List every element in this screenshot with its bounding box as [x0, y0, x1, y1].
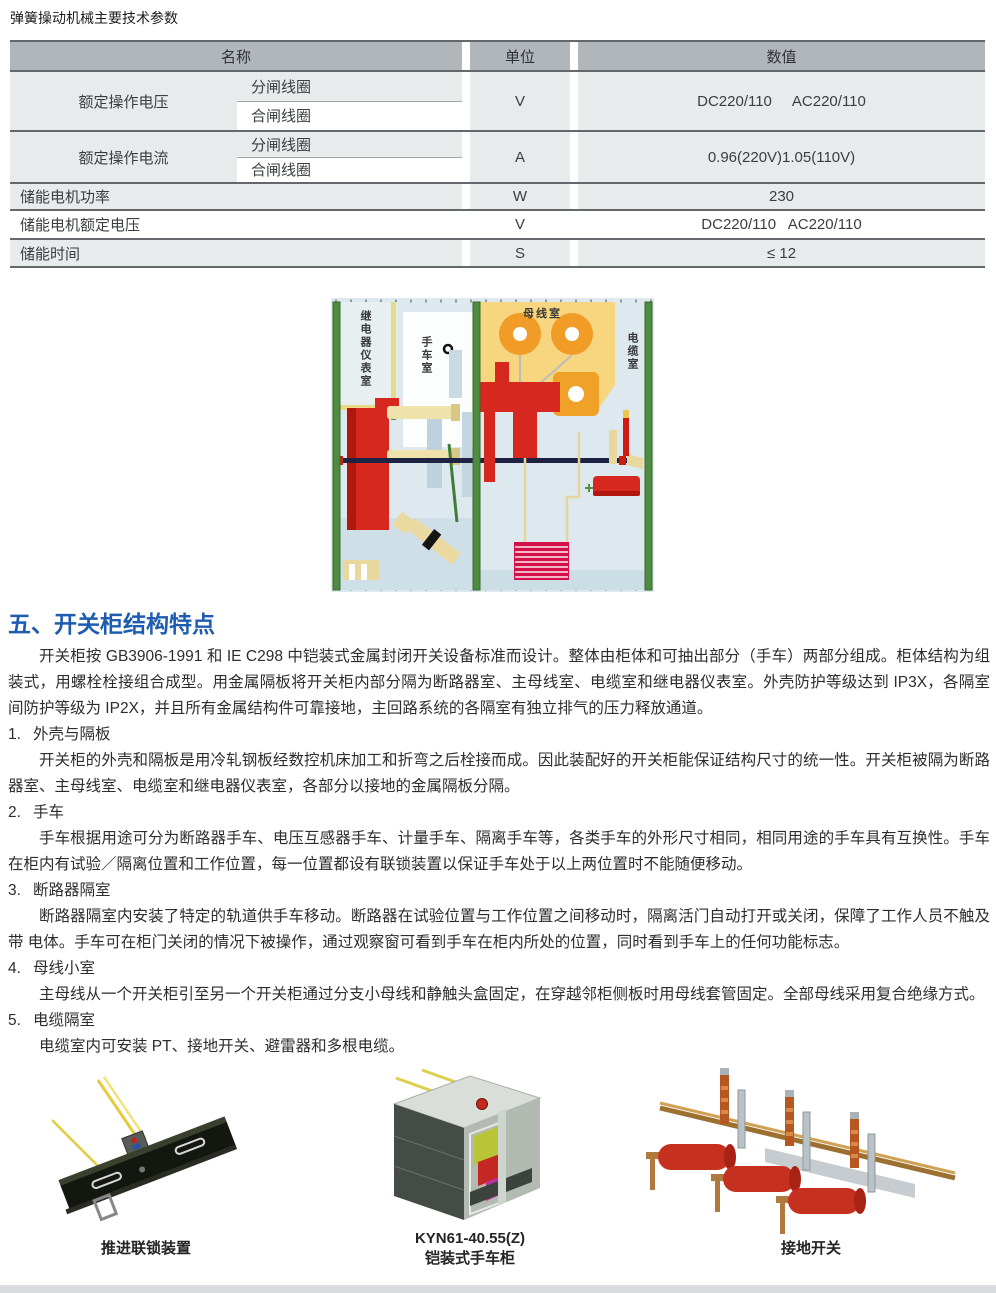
item-number: 2. — [8, 804, 21, 821]
item-title-text: 手车 — [33, 804, 64, 821]
item-title: 3.断路器隔室 — [8, 878, 990, 904]
row-unit: S — [470, 240, 570, 266]
figure-caption: KYN61-40.55(Z) — [382, 1229, 558, 1249]
row-name: 储能电机功率 — [10, 184, 462, 209]
item-title-text: 外壳与隔板 — [33, 726, 111, 743]
table-header-row: 名称 单位 数值 — [10, 42, 985, 72]
row-name: 储能时间 — [10, 240, 462, 266]
cabinet-illustration — [382, 1062, 558, 1224]
figure-cabinet: KYN61-40.55(Z) 铠装式手车柜 — [382, 1062, 558, 1269]
column-gap — [570, 184, 578, 209]
intro-paragraph: 开关柜按 GB3906-1991 和 IE C298 中铠装式金属封闭开关设备标… — [8, 644, 990, 722]
switchgear-section-diagram: 继电器仪表室 手车室 母线室 电缆室 — [327, 292, 658, 598]
handcart-room-label: 手车室 — [418, 336, 434, 402]
row-value: ≤ 12 — [578, 240, 985, 266]
item-title: 5.电缆隔室 — [8, 1008, 990, 1034]
item-body: 手车根据用途可分为断路器手车、电压互感器手车、计量手车、隔离手车等，各类手车的外… — [8, 826, 990, 878]
table-row: 额定操作电流 分闸线圈 合闸线圈 A 0.96(220V)1.05(110V) — [10, 132, 985, 184]
row-name: 额定操作电压 — [10, 72, 237, 130]
relay-room-label: 继电器仪表室 — [357, 310, 373, 412]
column-gap — [462, 184, 470, 209]
item-title: 4.母线小室 — [8, 956, 990, 982]
busbar-room-label: 母线室 — [523, 305, 562, 321]
column-gap — [462, 240, 470, 266]
item-title-text: 断路器隔室 — [33, 882, 111, 899]
subrow-close-coil: 合闸线圈 — [237, 102, 462, 131]
row-name: 额定操作电流 — [10, 132, 237, 182]
item-number: 1. — [8, 726, 21, 743]
row-unit: V — [470, 211, 570, 238]
column-gap — [462, 211, 470, 238]
item-number: 3. — [8, 882, 21, 899]
subrow-open-coil: 分闸线圈 — [237, 72, 462, 102]
column-gap — [570, 42, 578, 70]
item-body: 开关柜的外壳和隔板是用冷轧钢板经数控机床加工和折弯之后栓接而成。因此装配好的开关… — [8, 748, 990, 800]
table-row: 储能电机功率 W 230 — [10, 184, 985, 211]
row-unit: W — [470, 184, 570, 209]
subrow-close-coil: 合闸线圈 — [237, 158, 462, 183]
row-value: DC220/110 AC220/110 — [578, 72, 985, 130]
item-title: 2.手车 — [8, 800, 990, 826]
row-subcells: 分闸线圈 合闸线圈 — [237, 72, 462, 130]
page-title: 弹簧操动机械主要技术参数 — [10, 8, 178, 28]
column-gap — [462, 42, 470, 70]
column-gap — [462, 132, 470, 182]
row-subcells: 分闸线圈 合闸线圈 — [237, 132, 462, 182]
column-gap — [570, 240, 578, 266]
row-value: 0.96(220V)1.05(110V) — [578, 132, 985, 182]
item-title: 1.外壳与隔板 — [8, 722, 990, 748]
item-title-text: 电缆隔室 — [33, 1012, 95, 1029]
section-heading: 五、开关柜结构特点 — [8, 605, 215, 639]
row-name: 储能电机额定电压 — [10, 211, 462, 238]
figure-caption-line2: 铠装式手车柜 — [382, 1249, 558, 1269]
switchgear-diagram-image — [327, 292, 658, 598]
row-value: DC220/110 AC220/110 — [578, 211, 985, 238]
row-unit: V — [470, 72, 570, 130]
column-gap — [570, 211, 578, 238]
subrow-open-coil: 分闸线圈 — [237, 132, 462, 158]
row-value: 230 — [578, 184, 985, 209]
column-gap — [570, 132, 578, 182]
figure-caption: 推进联锁装置 — [40, 1239, 252, 1259]
figure-earthing-switch: 接地开关 — [645, 1056, 977, 1259]
item-title-text: 母线小室 — [33, 960, 95, 977]
cable-room-label: 电缆室 — [624, 332, 640, 398]
item-body: 主母线从一个开关柜引至另一个开关柜通过分支小母线和静触头盒固定，在穿越邻柜侧板时… — [8, 982, 990, 1008]
header-unit: 单位 — [470, 42, 570, 70]
section-body: 开关柜按 GB3906-1991 和 IE C298 中铠装式金属封闭开关设备标… — [8, 644, 990, 1060]
item-number: 5. — [8, 1012, 21, 1029]
header-value: 数值 — [578, 42, 985, 70]
table-row: 储能时间 S ≤ 12 — [10, 240, 985, 268]
catalog-page: 弹簧操动机械主要技术参数 名称 单位 数值 额定操作电压 分闸线圈 合闸线圈 V… — [0, 0, 996, 1293]
column-gap — [462, 72, 470, 130]
item-body: 断路器隔室内安装了特定的轨道供手车移动。断路器在试验位置与工作位置之间移动时，隔… — [8, 904, 990, 956]
column-gap — [570, 72, 578, 130]
figure-caption: 接地开关 — [645, 1239, 977, 1259]
row-unit: A — [470, 132, 570, 182]
table-row: 储能电机额定电压 V DC220/110 AC220/110 — [10, 211, 985, 240]
item-number: 4. — [8, 960, 21, 977]
cable-stack — [514, 542, 569, 580]
header-name: 名称 — [10, 42, 462, 70]
parameters-table: 名称 单位 数值 额定操作电压 分闸线圈 合闸线圈 V DC220/110 AC… — [10, 40, 985, 268]
table-row: 额定操作电压 分闸线圈 合闸线圈 V DC220/110 AC220/110 — [10, 72, 985, 132]
interlock-rail-illustration — [40, 1058, 252, 1234]
figure-interlock: 推进联锁装置 — [40, 1058, 252, 1259]
earthing-switch-illustration — [645, 1056, 977, 1234]
page-bottom-edge — [0, 1285, 996, 1293]
